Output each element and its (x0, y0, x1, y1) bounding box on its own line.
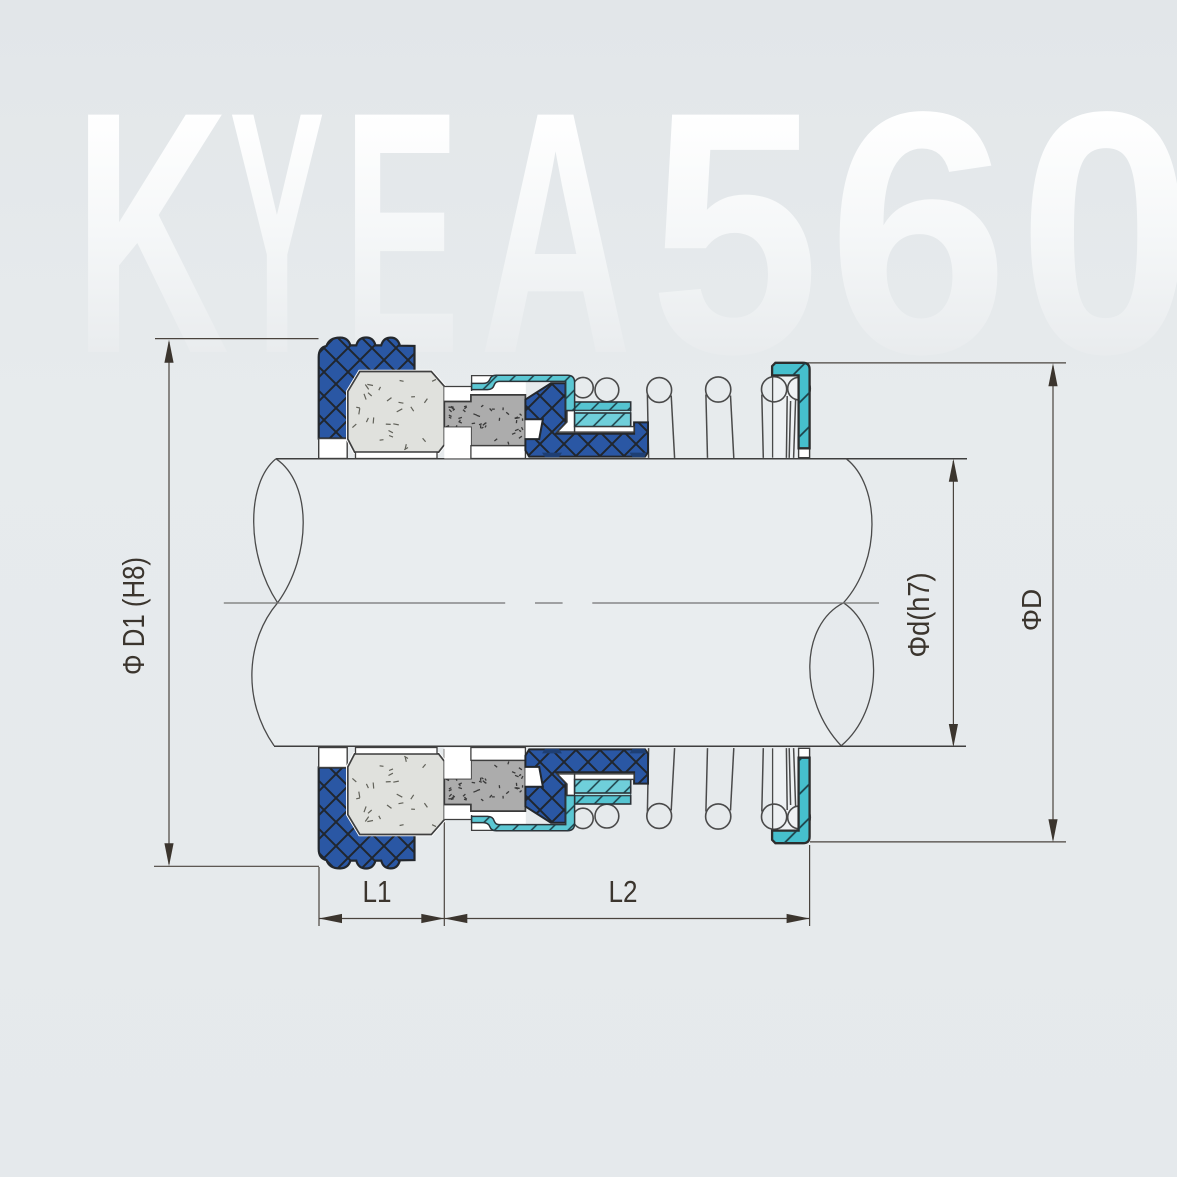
svg-text:0: 0 (1018, 41, 1177, 426)
svg-text:Φd(h7): Φd(h7) (901, 573, 936, 658)
svg-text:ΦD: ΦD (1016, 589, 1047, 632)
svg-text:6: 6 (828, 41, 1009, 426)
svg-text:Y: Y (230, 40, 325, 426)
svg-text:K: K (74, 40, 229, 425)
svg-text:A: A (480, 39, 632, 425)
svg-text:L1: L1 (363, 874, 392, 909)
svg-text:Φ D1 (H8): Φ D1 (H8) (116, 557, 151, 675)
svg-text:L2: L2 (609, 874, 638, 909)
